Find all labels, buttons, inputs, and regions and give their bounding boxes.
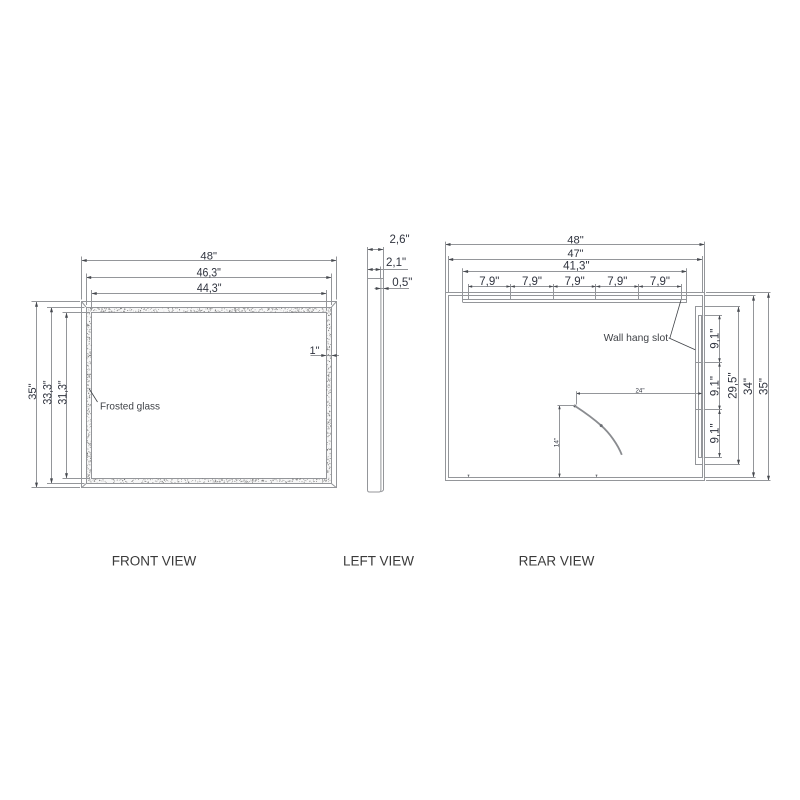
svg-text:46,3": 46,3" <box>197 267 221 279</box>
svg-text:47": 47" <box>568 248 584 260</box>
svg-text:7,9": 7,9" <box>650 276 670 288</box>
svg-text:35": 35" <box>759 378 771 395</box>
svg-text:9,1": 9,1" <box>709 329 721 349</box>
svg-text:33,3": 33,3" <box>42 380 54 404</box>
svg-text:14": 14" <box>554 437 561 447</box>
svg-text:48": 48" <box>567 235 584 247</box>
svg-text:0,5": 0,5" <box>392 277 412 289</box>
svg-text:Frosted glass: Frosted glass <box>100 402 160 413</box>
svg-text:LEFT VIEW: LEFT VIEW <box>343 554 414 569</box>
svg-text:44,3": 44,3" <box>197 283 222 295</box>
svg-text:34": 34" <box>743 378 755 395</box>
svg-text:2,6": 2,6" <box>390 234 410 246</box>
svg-text:Wall hang slot: Wall hang slot <box>604 332 669 344</box>
svg-text:7,9": 7,9" <box>565 276 585 288</box>
svg-text:9,1": 9,1" <box>709 423 721 443</box>
svg-text:31,3": 31,3" <box>57 380 69 404</box>
svg-text:7,9": 7,9" <box>479 276 499 288</box>
svg-text:FRONT VIEW: FRONT VIEW <box>112 554 197 569</box>
svg-text:9,1": 9,1" <box>709 376 721 396</box>
svg-text:48": 48" <box>200 250 217 262</box>
svg-text:35": 35" <box>27 383 39 400</box>
svg-text:7,9": 7,9" <box>607 276 627 288</box>
svg-text:7,9": 7,9" <box>522 276 542 288</box>
svg-text:1": 1" <box>309 345 319 357</box>
svg-text:29,5": 29,5" <box>728 372 740 398</box>
svg-text:2,1": 2,1" <box>386 257 406 269</box>
svg-text:REAR VIEW: REAR VIEW <box>519 554 595 569</box>
svg-text:41,3": 41,3" <box>563 260 589 272</box>
svg-text:24": 24" <box>636 388 646 395</box>
